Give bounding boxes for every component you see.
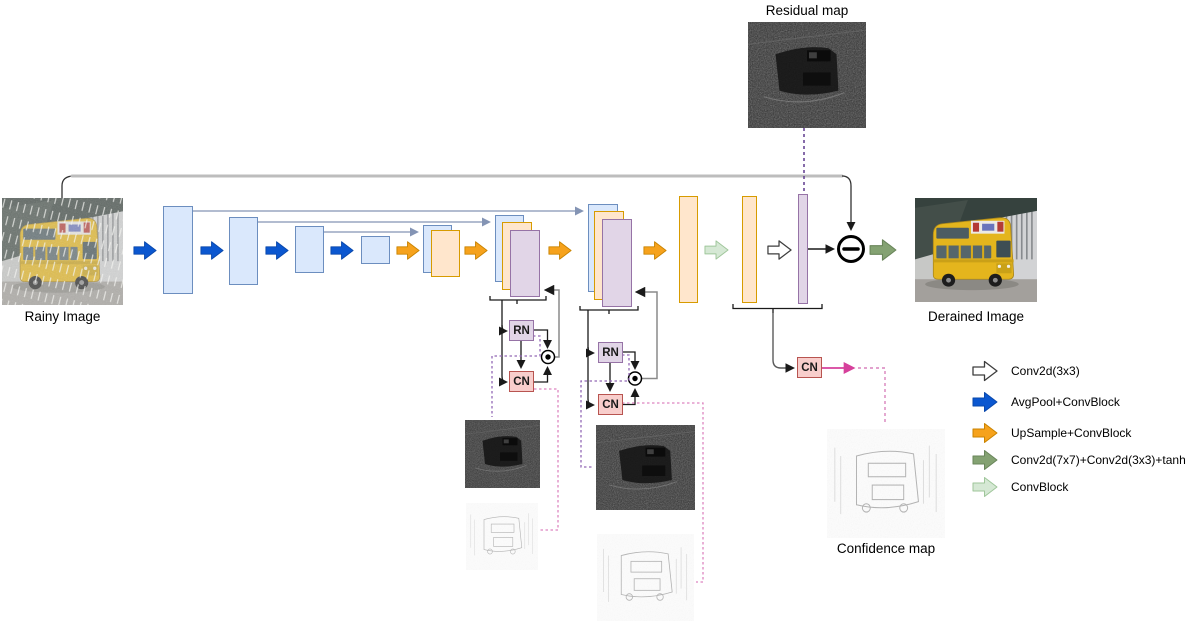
residual-map-scale2 — [596, 425, 695, 510]
cn-block-1: CN — [509, 371, 534, 392]
upsample-arrow-1 — [397, 242, 419, 260]
rn2-label: RN — [602, 347, 619, 359]
residual-map-image — [748, 22, 866, 128]
cn1-label: CN — [513, 376, 530, 388]
legend-label-conv7x7-tanh: Conv2d(7x7)+Conv2d(3x3)+tanh() — [1011, 453, 1186, 467]
avgpool-arrow-3 — [266, 242, 288, 260]
deraining-network-architecture-diagram: RN CN RN CN CN Rainy Image Derained Imag… — [0, 0, 1186, 627]
cn-block-2: CN — [598, 394, 623, 415]
upsample-arrow-4 — [644, 242, 666, 260]
legend-label-upsample-convblock: UpSample+ConvBlock — [1011, 426, 1131, 440]
final-feature-bar-1 — [679, 196, 698, 303]
encoder-block-4 — [361, 236, 390, 264]
rn-block-2: RN — [598, 342, 623, 363]
derained-image — [915, 198, 1037, 302]
derained-image-label: Derained Image — [915, 309, 1037, 324]
module-2-product-to-decoder — [637, 292, 657, 379]
legend-label-conv2d-3x3: Conv2d(3x3) — [1011, 364, 1080, 378]
encoder-block-3 — [295, 226, 324, 273]
confidence-map-scale2 — [597, 534, 694, 621]
decoder-stack1-feature — [431, 230, 460, 277]
upsample-arrow-3 — [549, 242, 571, 260]
encoder-block-1 — [163, 206, 193, 294]
confidence-map-scale1 — [466, 503, 538, 570]
conv2d-3x3-arrow — [768, 241, 791, 259]
decoder-stack3-refined — [602, 219, 632, 307]
legend-item-conv2d-3x3: Conv2d(3x3) — [972, 359, 1080, 383]
cn-block-final: CN — [797, 357, 822, 378]
residual-map-label: Residual map — [748, 3, 866, 18]
convblock-arrow — [705, 241, 728, 259]
cn-to-confidence-dashed — [858, 368, 885, 425]
confidence-map-label: Confidence map — [827, 541, 945, 556]
elementwise-product-node-2 — [629, 372, 642, 385]
confidence-map-image — [827, 429, 945, 538]
upsample-arrow-2 — [465, 242, 487, 260]
decoder-stack2-refined — [510, 230, 540, 297]
subtract-node — [839, 237, 864, 262]
avgpool-convblock-arrow-icon — [972, 390, 998, 414]
residual-output-bar — [798, 194, 808, 304]
encoder-block-2 — [229, 217, 258, 285]
conv7x7-tanh-arrow-icon — [972, 448, 998, 472]
legend-label-convblock: ConvBlock — [1011, 480, 1068, 494]
convblock-arrow-icon — [972, 475, 998, 499]
cn2-label: CN — [602, 399, 619, 411]
final-feature-bar-2 — [742, 196, 757, 303]
avgpool-arrow-1 — [134, 242, 156, 260]
legend-item-upsample-convblock: UpSample+ConvBlock — [972, 421, 1131, 445]
output-tanh-arrow — [870, 240, 896, 260]
rn-block-1: RN — [509, 320, 534, 341]
rainy-image — [2, 198, 123, 305]
legend-label-avgpool-convblock: AvgPool+ConvBlock — [1011, 395, 1120, 409]
legend-item-conv7x7-tanh: Conv2d(7x7)+Conv2d(3x3)+tanh() — [972, 448, 1186, 472]
avgpool-arrow-4 — [331, 242, 353, 260]
rainy-image-label: Rainy Image — [2, 309, 123, 324]
cn3-label: CN — [801, 362, 818, 374]
conv2d-3x3-arrow-icon — [972, 359, 998, 383]
rn1-label: RN — [513, 325, 530, 337]
elementwise-product-node-1 — [542, 351, 555, 364]
avgpool-arrow-2 — [201, 242, 223, 260]
upsample-convblock-arrow-icon — [972, 421, 998, 445]
legend-item-convblock: ConvBlock — [972, 475, 1068, 499]
residual-map-scale1 — [465, 420, 540, 488]
legend-item-avgpool-convblock: AvgPool+ConvBlock — [972, 390, 1120, 414]
